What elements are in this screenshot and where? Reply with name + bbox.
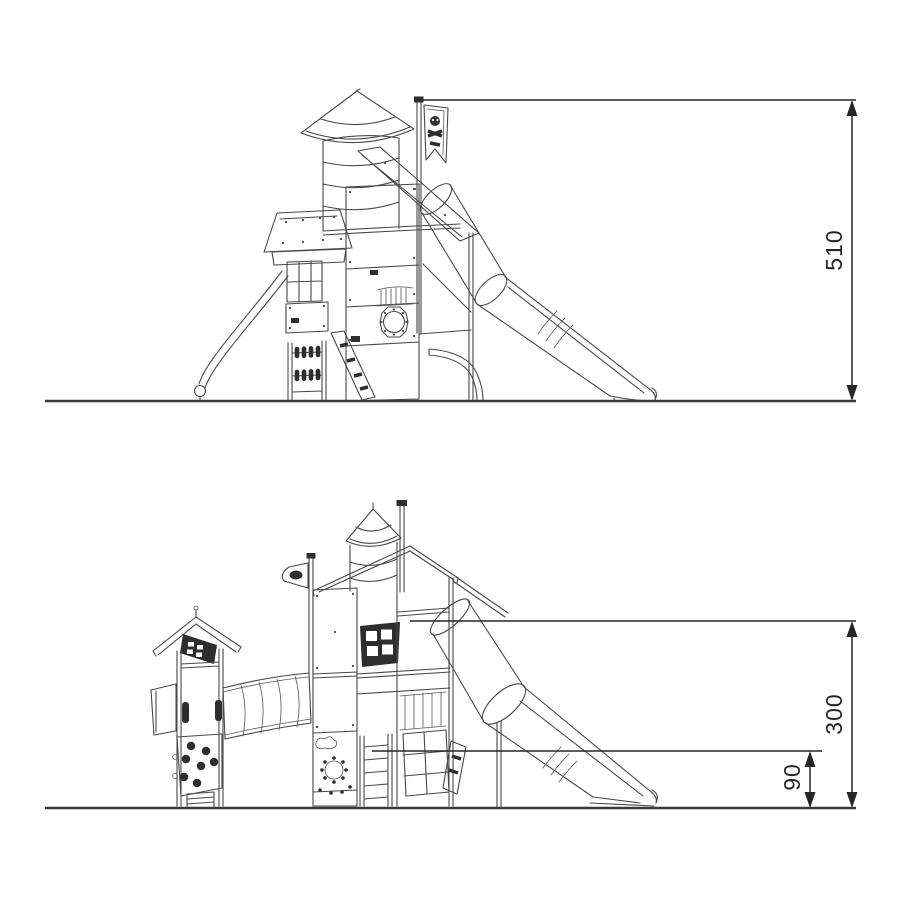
slide-exit bbox=[610, 388, 656, 401]
dark-plate bbox=[291, 318, 299, 323]
clock-dots bbox=[320, 758, 350, 793]
pole-cap bbox=[307, 553, 316, 559]
porthole-bolts bbox=[382, 310, 407, 335]
vertical-rods bbox=[400, 692, 446, 730]
bolts bbox=[385, 163, 445, 215]
small-tower-body bbox=[151, 649, 223, 806]
arrow-up-icon bbox=[847, 100, 858, 116]
tunnel-bands bbox=[241, 676, 299, 736]
dimension-label: 90 bbox=[779, 763, 805, 791]
arrow-up-icon bbox=[805, 751, 816, 767]
tower-window bbox=[360, 622, 400, 667]
grip-handle-right bbox=[215, 700, 222, 721]
exit-handrail bbox=[429, 349, 483, 400]
arrow-down-icon bbox=[847, 385, 858, 401]
grip-handle-left bbox=[182, 702, 189, 723]
crossbones-icon bbox=[428, 131, 442, 145]
flag-emblem bbox=[290, 571, 303, 580]
arrow-down-icon bbox=[847, 792, 858, 808]
rung-lattice bbox=[287, 261, 322, 302]
cone-roof bbox=[346, 503, 401, 546]
bolts bbox=[290, 306, 324, 328]
main-turret bbox=[346, 500, 407, 592]
crawl-tunnel bbox=[223, 673, 311, 739]
fireman-pole bbox=[195, 271, 289, 401]
balcony-panel bbox=[264, 210, 352, 265]
base-ladder bbox=[187, 792, 214, 807]
roof-finial bbox=[194, 606, 198, 610]
pole-cap bbox=[414, 97, 424, 103]
deck-line bbox=[323, 224, 460, 235]
cloud-cutout bbox=[316, 737, 337, 749]
small-tower-roof bbox=[153, 606, 241, 664]
arrow-up-icon bbox=[847, 621, 858, 637]
slide-cover-plank bbox=[453, 577, 508, 617]
pirate-banner-icon bbox=[424, 105, 448, 163]
slide-joints bbox=[543, 747, 577, 782]
cylinder bbox=[350, 542, 397, 591]
elevation-drawing: 510 bbox=[0, 0, 900, 900]
climbing-holds bbox=[184, 746, 214, 783]
climbing-net bbox=[403, 730, 449, 796]
tube-entrance bbox=[425, 594, 474, 641]
support-post-brace bbox=[423, 233, 473, 400]
dark-plate-2 bbox=[370, 270, 378, 275]
lower-view-front-elevation: 300 90 bbox=[45, 500, 858, 808]
abacus-beads-rail bbox=[288, 341, 326, 401]
height-dimension-510: 510 bbox=[423, 100, 858, 401]
open-slide-channel bbox=[484, 687, 650, 797]
tube-mouth bbox=[470, 269, 512, 310]
side-panel bbox=[151, 684, 176, 735]
upper-view-side-elevation: 510 bbox=[45, 89, 858, 401]
dimension-label: 300 bbox=[821, 693, 847, 734]
bolts bbox=[350, 189, 414, 340]
main-left-panel bbox=[313, 588, 357, 806]
tower-ladder bbox=[360, 734, 392, 806]
arrow-down-icon bbox=[805, 792, 816, 808]
skull-icon bbox=[430, 116, 440, 126]
climbing-wall bbox=[173, 734, 222, 807]
technical-drawing-canvas: 510 bbox=[0, 0, 900, 900]
dimension-label: 510 bbox=[821, 229, 847, 270]
activity-clock bbox=[325, 761, 343, 779]
pole-curl bbox=[195, 386, 206, 397]
pennant-flag bbox=[282, 553, 315, 673]
board-cleats bbox=[449, 756, 461, 773]
dotted-panel bbox=[286, 302, 328, 333]
bolts bbox=[317, 594, 353, 727]
turret-cone-roof bbox=[301, 89, 414, 143]
mast-cap bbox=[397, 500, 408, 506]
platform-dimension-90: 90 bbox=[372, 751, 822, 808]
tube-slide bbox=[415, 179, 656, 401]
slide-exit bbox=[590, 790, 657, 806]
dark-plate-1 bbox=[351, 336, 360, 342]
porthole-window bbox=[380, 307, 408, 337]
gable-roof bbox=[313, 546, 508, 617]
